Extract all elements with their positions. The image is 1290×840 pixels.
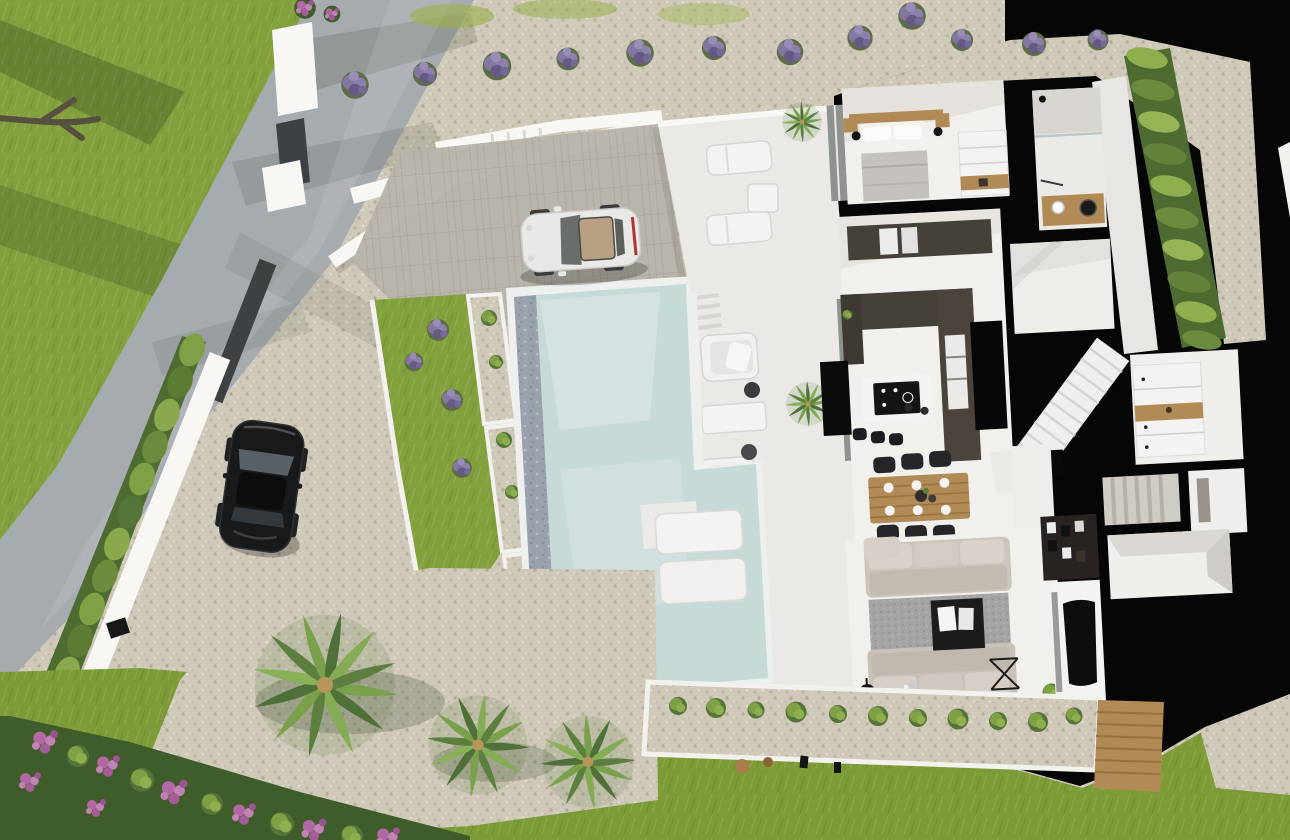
- utility-room: [1188, 468, 1247, 535]
- side-mirror: [553, 206, 561, 212]
- open-roof-interior: [578, 217, 615, 261]
- service-stair: [1102, 474, 1180, 526]
- bar-stool: [871, 431, 886, 444]
- round-side-table: [744, 382, 760, 398]
- bar-stool: [852, 428, 867, 441]
- grass-patch: [658, 3, 750, 25]
- master-bedroom: [842, 80, 1010, 204]
- bar-stool: [889, 433, 904, 446]
- shower-zone: [1032, 87, 1102, 134]
- rock: [763, 757, 773, 767]
- terrace-lounger: [706, 140, 772, 175]
- gate-pillar: [262, 160, 306, 212]
- car-roof: [235, 471, 287, 511]
- round-mirror: [1080, 199, 1097, 216]
- terrace-side-table: [748, 184, 778, 212]
- counter-left-stub: [840, 294, 864, 365]
- coffee-table: [931, 598, 986, 651]
- bollard-light: [834, 762, 841, 773]
- utility-floor: [1188, 468, 1247, 535]
- gate-pillar: [272, 22, 318, 116]
- oven-column: [945, 335, 969, 410]
- villa-aerial-render: [0, 0, 1290, 840]
- round-side-table: [741, 444, 757, 460]
- utility-mat: [1197, 478, 1211, 523]
- rock: [735, 759, 749, 773]
- built-in-appliance: [901, 227, 918, 254]
- pillow: [894, 125, 922, 139]
- deck-table: [701, 402, 767, 434]
- scene-canvas: [0, 0, 1290, 840]
- in-pool-lounger: [655, 510, 743, 554]
- bed-blanket: [861, 150, 929, 201]
- entrance-hall: [1010, 239, 1115, 334]
- upper-terrace: [658, 101, 846, 292]
- terrace-lounger: [706, 210, 772, 245]
- pink-flower-bush: [324, 6, 341, 23]
- side-mirror: [558, 271, 566, 277]
- basin: [1052, 201, 1065, 214]
- grass-patch: [410, 4, 494, 28]
- dining-chair: [929, 450, 952, 467]
- built-in-appliance: [879, 228, 898, 255]
- pantry: [1130, 349, 1244, 465]
- water-highlight: [540, 292, 660, 430]
- stair-wall-column: [970, 321, 1008, 431]
- deck-armchair: [700, 332, 759, 382]
- chaise-cushion: [863, 536, 900, 560]
- induction-hob: [873, 381, 921, 415]
- annex-room: [1107, 529, 1232, 599]
- in-pool-lounger: [659, 558, 747, 604]
- bollard-light: [799, 756, 808, 769]
- white-sports-car: [516, 200, 649, 289]
- tall-unit: [820, 361, 852, 436]
- dining-chair: [901, 453, 924, 470]
- dining-chair: [873, 456, 896, 473]
- bathroom: [1032, 87, 1107, 230]
